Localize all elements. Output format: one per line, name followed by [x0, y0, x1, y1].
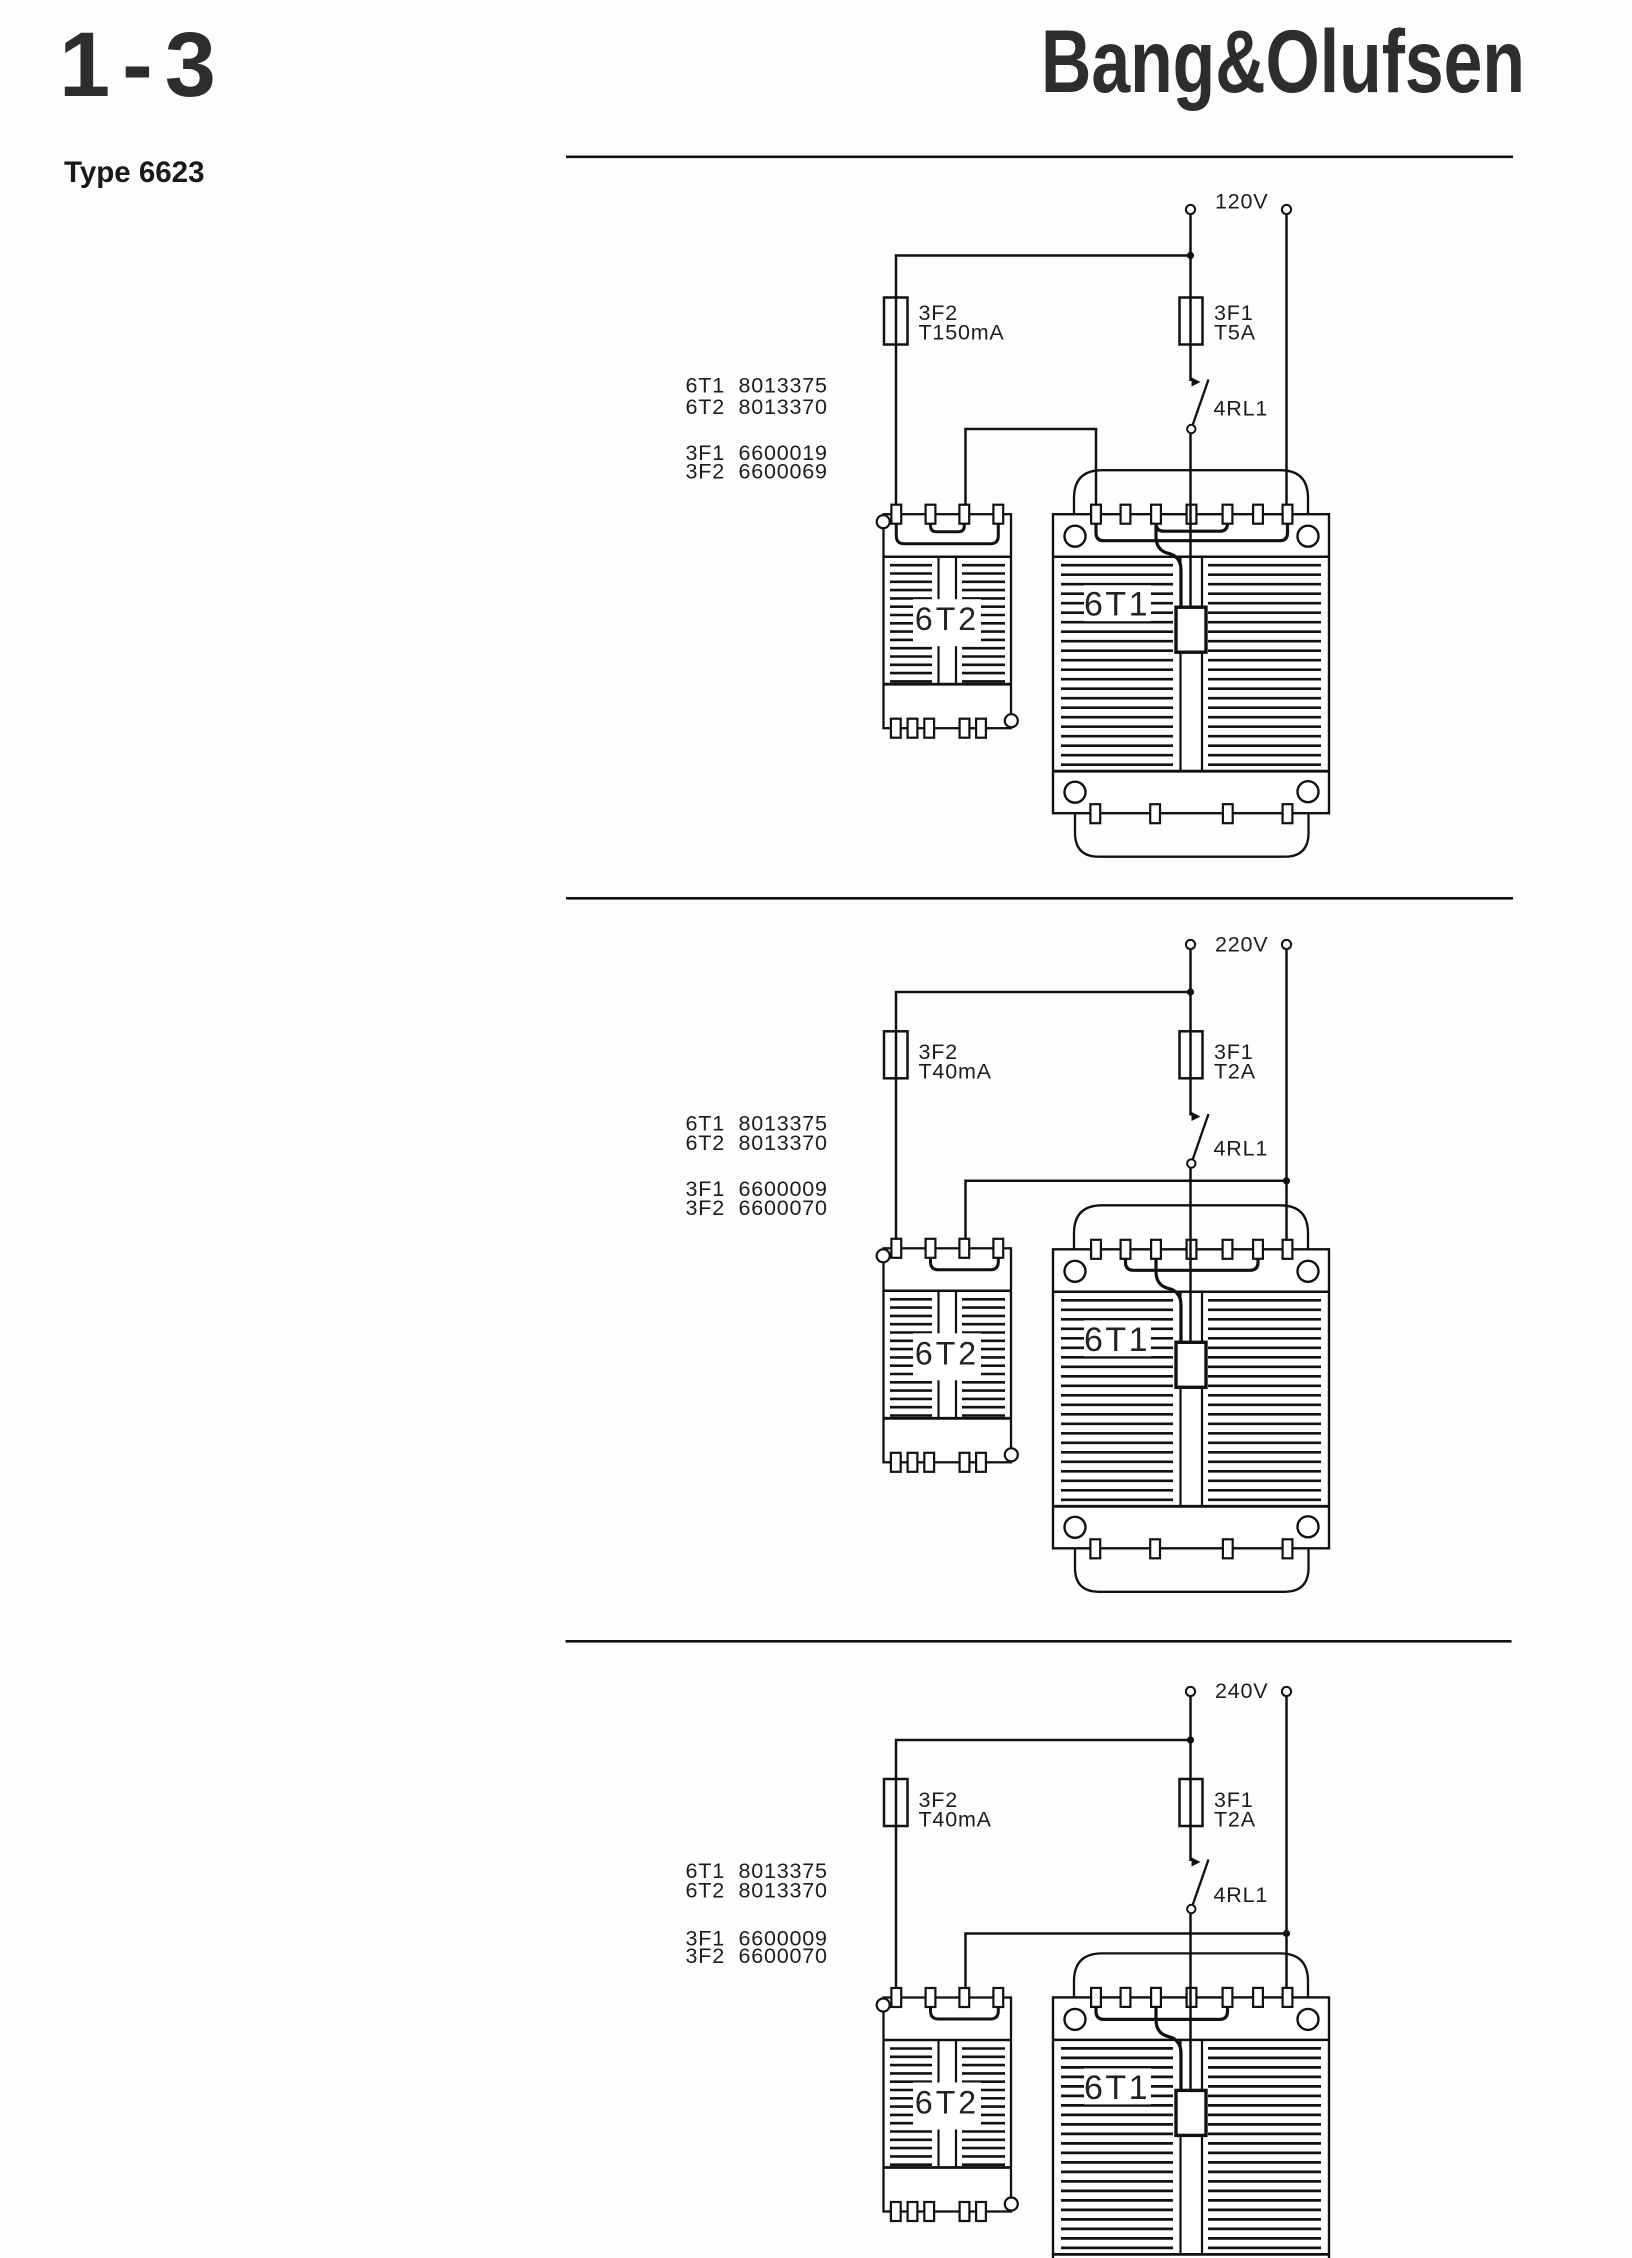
svg-text:T40mA: T40mA	[919, 1807, 992, 1831]
svg-text:4RL1: 4RL1	[1214, 396, 1269, 420]
svg-text:6T2 8013370: 6T2 8013370	[686, 395, 828, 419]
svg-text:6T1: 6T1	[1084, 586, 1150, 624]
svg-text:6T1 8013375: 6T1 8013375	[686, 374, 828, 398]
svg-text:1-3: 1-3	[59, 14, 228, 116]
svg-text:6T2: 6T2	[915, 2085, 979, 2121]
svg-text:6T1: 6T1	[1084, 2069, 1150, 2107]
svg-text:T150mA: T150mA	[919, 321, 1005, 345]
svg-text:6T2: 6T2	[915, 1335, 979, 1371]
svg-text:220V: 220V	[1215, 933, 1268, 957]
svg-text:T5A: T5A	[1214, 321, 1256, 345]
svg-text:120V: 120V	[1215, 190, 1268, 214]
svg-text:6T2: 6T2	[915, 601, 979, 637]
svg-text:6T1: 6T1	[1084, 1321, 1150, 1359]
svg-text:Type 6623: Type 6623	[64, 156, 205, 189]
svg-text:T2A: T2A	[1214, 1807, 1256, 1831]
svg-text:Bang&Olufsen: Bang&Olufsen	[1041, 11, 1525, 111]
svg-text:3F2 6600070: 3F2 6600070	[686, 1196, 828, 1220]
svg-text:T40mA: T40mA	[919, 1059, 992, 1083]
svg-text:3F2 6600069: 3F2 6600069	[686, 459, 828, 483]
svg-text:3F2 6600070: 3F2 6600070	[686, 1944, 828, 1968]
svg-text:6T2 8013370: 6T2 8013370	[686, 1131, 828, 1155]
svg-text:4RL1: 4RL1	[1214, 1883, 1269, 1907]
svg-text:6T2 8013370: 6T2 8013370	[686, 1879, 828, 1903]
svg-text:4RL1: 4RL1	[1214, 1136, 1269, 1160]
svg-text:240V: 240V	[1215, 1679, 1268, 1703]
svg-text:T2A: T2A	[1214, 1059, 1256, 1083]
